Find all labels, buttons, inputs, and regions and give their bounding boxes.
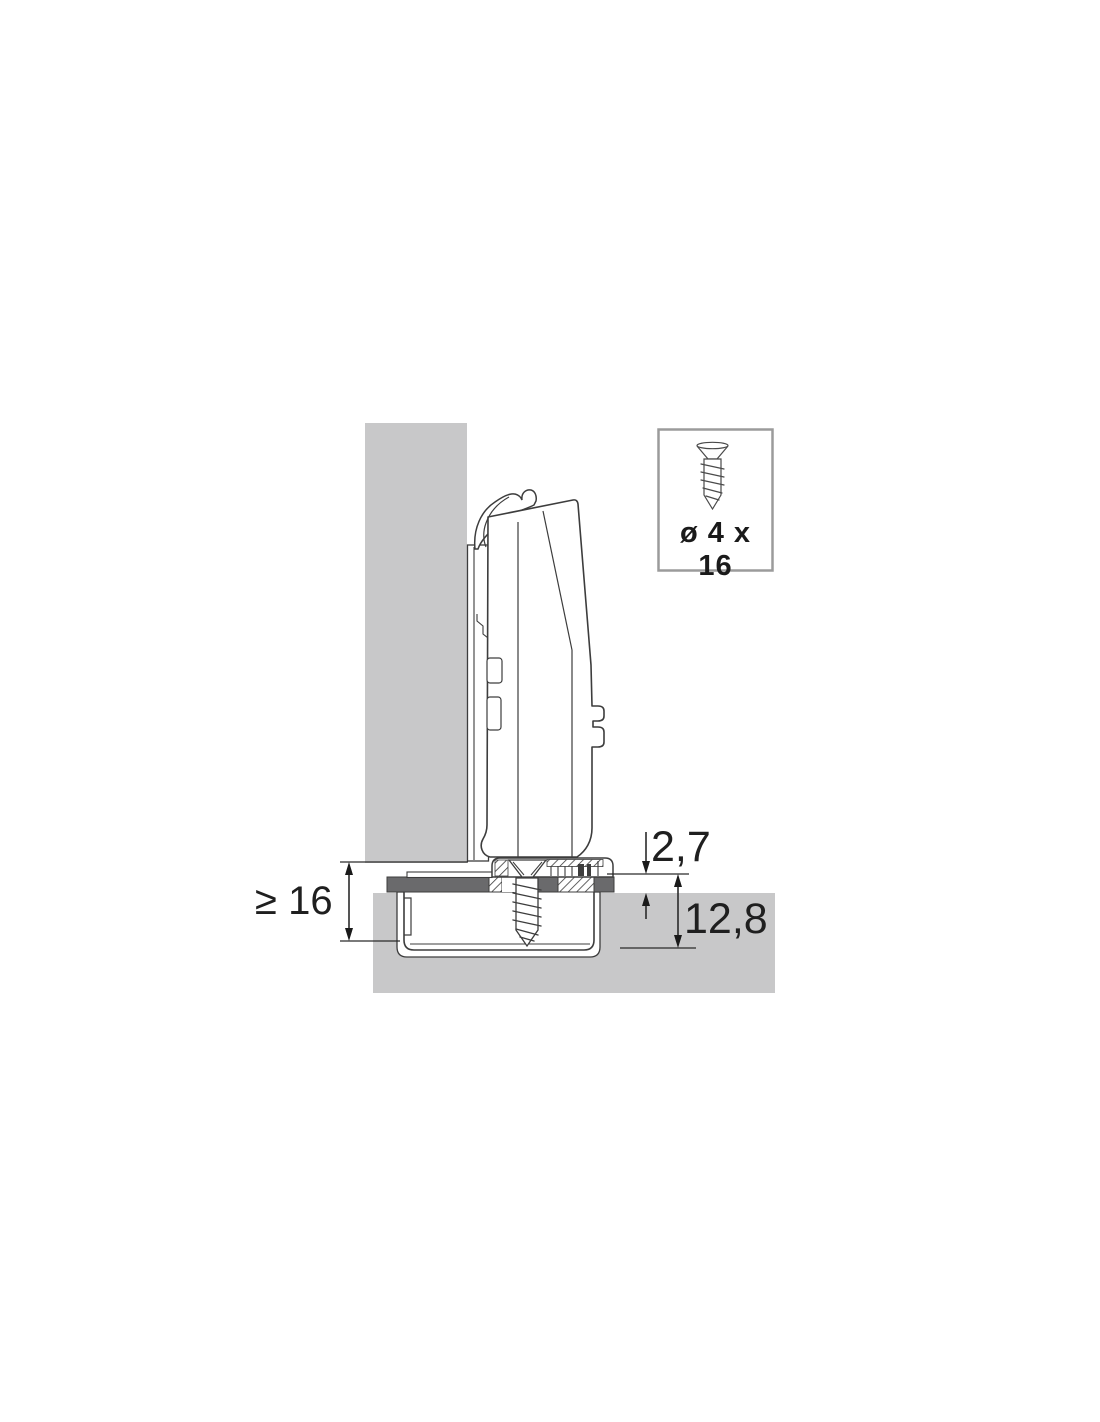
- cabinet-side-panel: [365, 423, 467, 863]
- technical-drawing: [0, 0, 1100, 1422]
- mounting-plate: [468, 545, 489, 861]
- cup-depth-label: 12,8: [684, 898, 768, 941]
- screw-spec-label: ø 4 x 16: [659, 517, 772, 583]
- hinge-arm: [481, 497, 604, 857]
- hinge-mounting-diagram: 2,7 12,8 ≥ 16 ø 4 x 16: [0, 0, 1100, 1422]
- min-thickness-label: ≥ 16: [255, 881, 333, 921]
- hinge-cup: [397, 890, 600, 957]
- flange-offset-label: 2,7: [651, 826, 711, 869]
